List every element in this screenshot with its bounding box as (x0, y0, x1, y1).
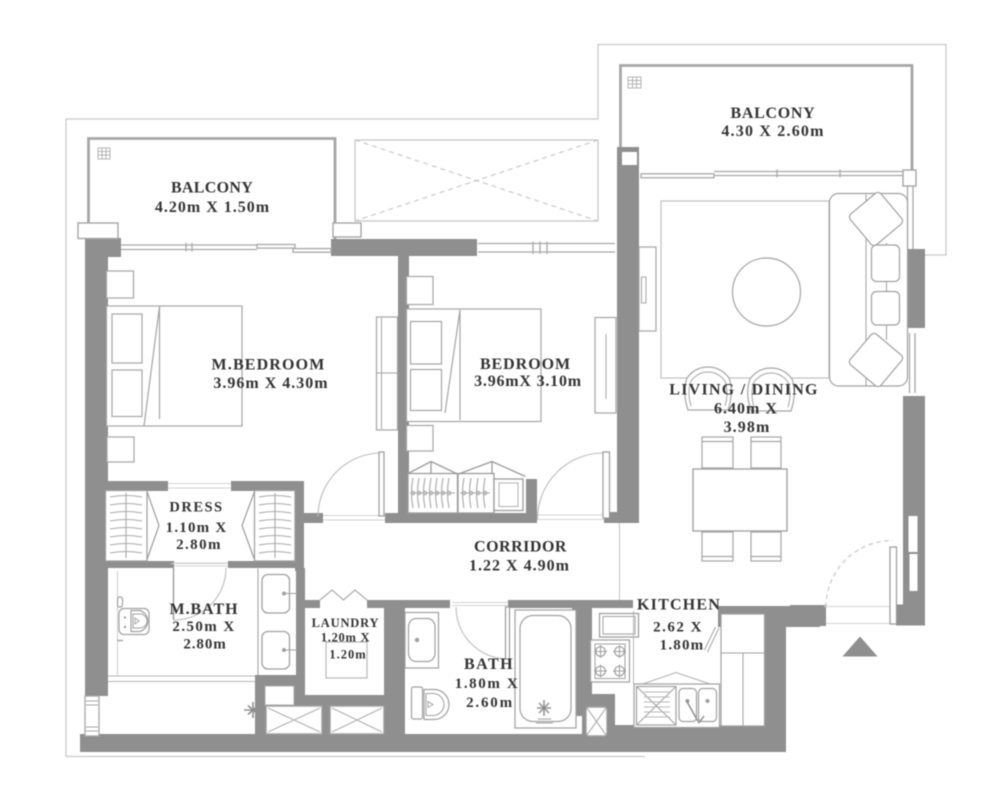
svg-text:BALCONY: BALCONY (171, 180, 253, 197)
svg-text:2.80m: 2.80m (183, 637, 226, 653)
svg-text:2.60m: 2.60m (466, 695, 514, 711)
svg-text:6.40m X: 6.40m X (714, 401, 778, 418)
svg-text:M.BATH: M.BATH (170, 601, 239, 618)
svg-text:CORRIDOR: CORRIDOR (474, 539, 567, 556)
svg-text:1.20m X: 1.20m X (321, 631, 370, 645)
svg-text:4.30 X 2.60m: 4.30 X 2.60m (721, 123, 824, 140)
svg-text:BEDROOM: BEDROOM (480, 356, 571, 373)
svg-text:3.96mX 3.10m: 3.96mX 3.10m (474, 373, 582, 390)
svg-text:DRESS: DRESS (169, 500, 223, 516)
svg-text:3.96m X 4.30m: 3.96m X 4.30m (213, 375, 328, 392)
svg-text:KITCHEN: KITCHEN (637, 597, 721, 614)
svg-text:4.20m X 1.50m: 4.20m X 1.50m (155, 199, 270, 216)
svg-text:1.80m X: 1.80m X (455, 676, 520, 692)
svg-text:BATH: BATH (464, 656, 514, 673)
svg-text:1.22 X 4.90m: 1.22 X 4.90m (469, 558, 570, 575)
svg-text:3.98m: 3.98m (724, 419, 771, 436)
svg-text:2.50m X: 2.50m X (172, 619, 235, 635)
svg-text:LAUNDRY: LAUNDRY (312, 616, 380, 630)
svg-text:LIVING / DINING: LIVING / DINING (669, 382, 818, 399)
svg-text:2.62 X: 2.62 X (653, 620, 703, 636)
svg-text:BALCONY: BALCONY (731, 105, 816, 122)
svg-text:1.80m: 1.80m (660, 638, 705, 654)
svg-text:M.BEDROOM: M.BEDROOM (212, 357, 326, 374)
svg-text:2.80m: 2.80m (176, 537, 222, 553)
svg-text:1.10m X: 1.10m X (166, 520, 228, 536)
svg-text:1.20m: 1.20m (329, 648, 366, 662)
